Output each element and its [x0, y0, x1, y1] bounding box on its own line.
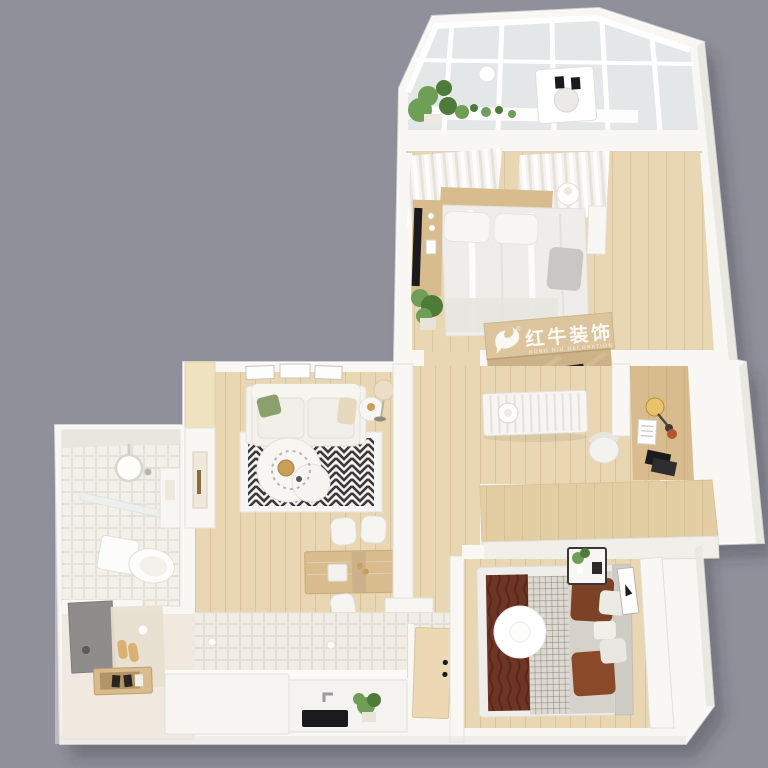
dining-table [305, 550, 396, 594]
dark-mat [68, 601, 116, 673]
gray-cushion [546, 247, 584, 292]
desk-lamp [646, 398, 664, 416]
partition-fin [612, 364, 630, 436]
shoes [135, 674, 143, 686]
rain-shower-head [116, 455, 142, 481]
small-pillow [594, 621, 616, 639]
balcony-divider-wall [404, 130, 702, 152]
towel [165, 480, 175, 500]
entry-door [412, 627, 451, 718]
sofa [246, 384, 366, 446]
dining-chair [360, 515, 386, 543]
nightstand-2 [568, 548, 606, 584]
desk-chair [589, 434, 619, 463]
hall-bench [482, 390, 587, 436]
floor-spotlight [208, 638, 216, 646]
gold-bowl [278, 460, 294, 476]
gold-decor [367, 403, 375, 411]
closet-panel [587, 206, 607, 255]
tall-cabinet [185, 362, 215, 428]
bedroom2-left-wall [450, 556, 464, 742]
floorplan-3d-render: ® 红牛装饰 HONG NIU DECORATION [0, 0, 768, 768]
wall-art-frame [280, 364, 310, 378]
round-stool [139, 626, 148, 635]
clock [592, 562, 602, 574]
bedroom1-wall [412, 350, 424, 366]
decor-sphere [479, 66, 495, 82]
niche-wall [185, 428, 215, 528]
bedroom2-top-wall [462, 545, 484, 561]
shoes [123, 674, 132, 687]
shoes [112, 675, 121, 688]
shelf-frame [426, 240, 436, 254]
desk-papers [637, 420, 656, 445]
bedroom1-door-opening [424, 352, 480, 366]
balcony [404, 18, 702, 152]
washing-machine [535, 66, 597, 124]
bedroom-2 [450, 545, 674, 742]
beige-throw [337, 397, 358, 425]
floor-spotlight [327, 641, 335, 649]
living-hall-partition [393, 364, 413, 600]
kitchen-island [165, 674, 289, 734]
registered-mark: ® [515, 325, 522, 332]
pillow [493, 213, 538, 245]
study-nook [630, 366, 694, 480]
pillow [443, 211, 491, 243]
tv-shelf-wall [411, 200, 443, 297]
desk-accessory [667, 429, 677, 439]
wall-art-frame [246, 366, 274, 380]
shoe-bench [94, 667, 153, 695]
floorplan-canvas: ® 红牛装饰 HONG NIU DECORATION [0, 0, 768, 768]
sink [302, 710, 348, 727]
bedside-lamp [564, 187, 572, 195]
dining-chair [330, 517, 357, 546]
bathroom [62, 430, 180, 614]
kitchen [165, 612, 462, 734]
pendant-lamp-core [510, 622, 530, 642]
tray [328, 564, 347, 581]
white-pillow [599, 638, 627, 664]
wall-art-frame [315, 366, 342, 380]
